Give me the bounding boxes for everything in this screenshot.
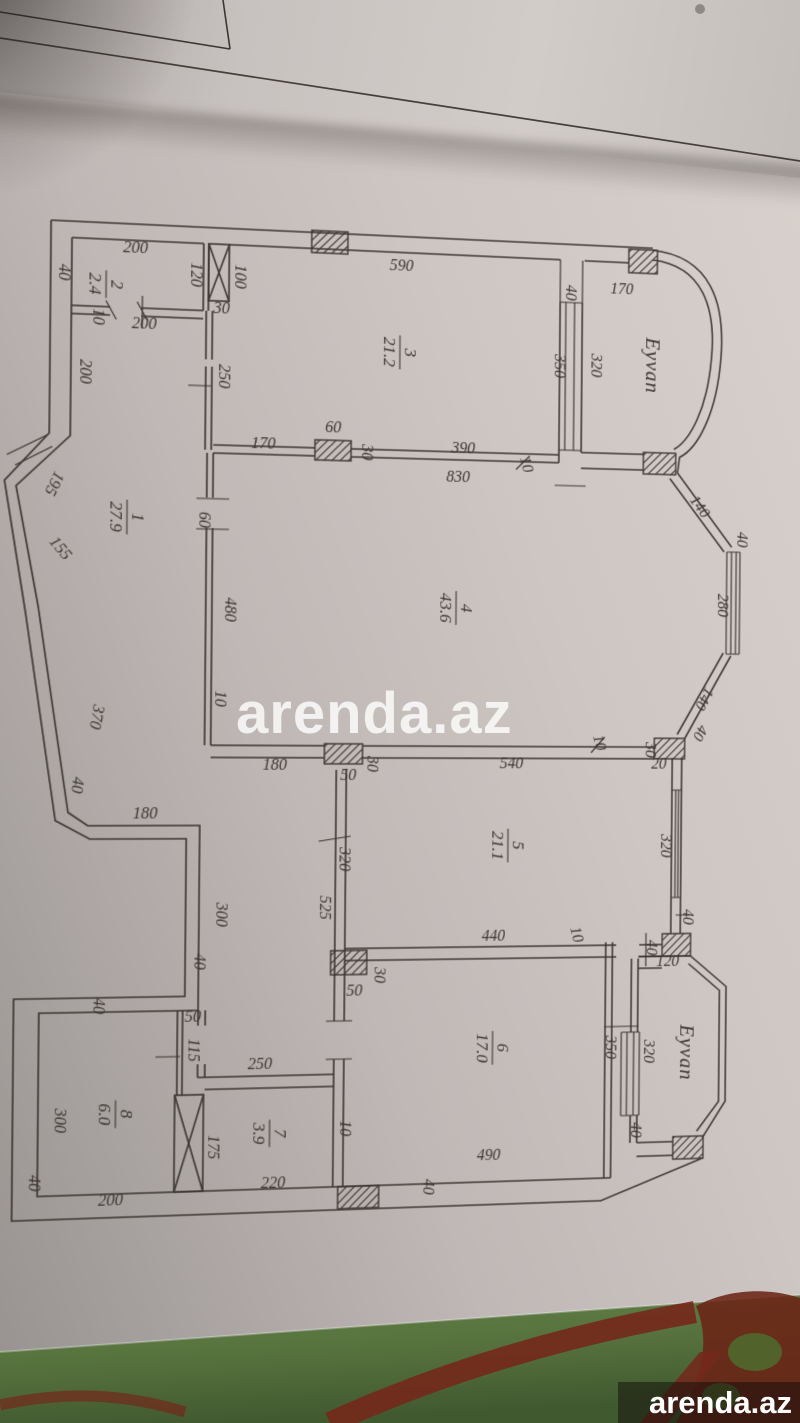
watermark: arenda.az [236, 680, 513, 747]
logo-text: arenda.az [649, 1387, 800, 1418]
logo-bar: arenda.az [618, 1382, 800, 1423]
cloth-pattern-hole [728, 1333, 782, 1371]
floor-plan-photo: 2004012010030200102505904017035032017060… [0, 0, 800, 1423]
